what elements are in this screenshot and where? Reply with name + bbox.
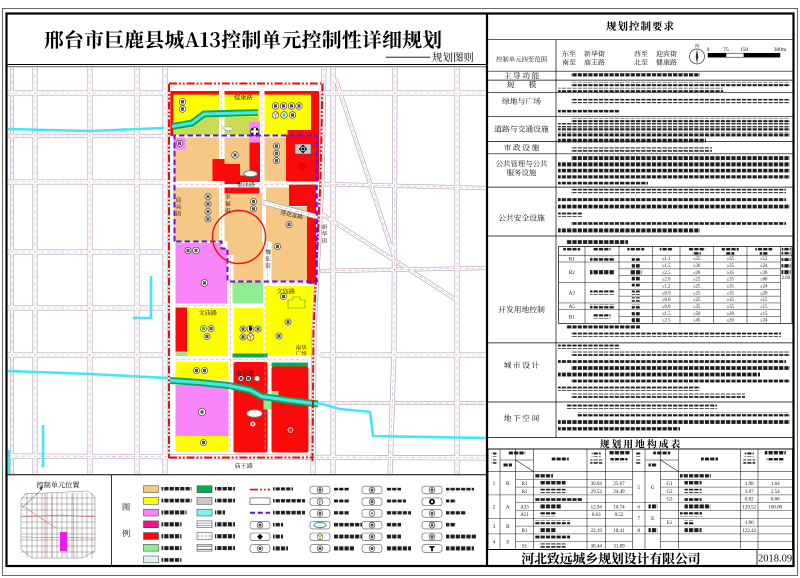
svg-text:≤24: ≤24 xyxy=(760,284,768,289)
svg-text:≤15: ≤15 xyxy=(760,312,768,317)
svg-text:≤24: ≤24 xyxy=(760,319,768,324)
svg-text:≤24: ≤24 xyxy=(760,264,768,269)
svg-text:2: 2 xyxy=(493,504,496,510)
svg-text:≤36: ≤36 xyxy=(760,271,768,276)
svg-text:122.42: 122.42 xyxy=(742,529,756,534)
svg-text:G: G xyxy=(651,485,655,491)
svg-text:150: 150 xyxy=(740,47,749,53)
svg-text:100.00: 100.00 xyxy=(768,505,782,510)
svg-text:≤35: ≤35 xyxy=(693,257,701,262)
svg-text:S: S xyxy=(506,540,509,546)
svg-text:A33: A33 xyxy=(520,505,529,510)
svg-text:38.44: 38.44 xyxy=(591,544,603,549)
svg-text:≤28: ≤28 xyxy=(693,271,701,276)
svg-text:≥35: ≥35 xyxy=(727,257,735,262)
svg-text:≤45: ≤45 xyxy=(693,319,701,324)
svg-text:4: 4 xyxy=(493,540,496,546)
svg-text:3.07: 3.07 xyxy=(745,490,754,495)
svg-text:≤15: ≤15 xyxy=(760,298,768,303)
svg-text:G2: G2 xyxy=(666,490,673,495)
svg-text:31.89: 31.89 xyxy=(613,544,625,549)
svg-text:0.63: 0.63 xyxy=(592,513,601,518)
svg-text:≥35: ≥35 xyxy=(727,271,735,276)
svg-text:A3: A3 xyxy=(569,291,576,297)
svg-text:R1: R1 xyxy=(522,482,528,487)
svg-text:≤25: ≤25 xyxy=(693,284,701,289)
svg-text:≤25: ≤25 xyxy=(693,298,701,303)
svg-text:≤2.5: ≤2.5 xyxy=(662,319,671,324)
svg-text:B1: B1 xyxy=(569,314,575,320)
svg-text:≤1.1: ≤1.1 xyxy=(662,257,671,262)
svg-text:G3: G3 xyxy=(666,498,673,503)
svg-text:8: 8 xyxy=(637,528,640,534)
svg-text:≤0.8: ≤0.8 xyxy=(662,298,671,303)
svg-text:≥20: ≥20 xyxy=(727,312,735,317)
svg-text:≤1.2: ≤1.2 xyxy=(662,284,671,289)
svg-text:≥20: ≥20 xyxy=(727,319,735,324)
svg-text:B1: B1 xyxy=(522,529,528,534)
svg-text:P: P xyxy=(319,500,322,505)
svg-text:R: R xyxy=(506,481,510,487)
svg-text:E1: E1 xyxy=(667,521,673,526)
svg-text:0.52: 0.52 xyxy=(615,513,624,518)
svg-text:1: 1 xyxy=(493,481,496,487)
svg-text:≤35: ≤35 xyxy=(693,305,701,310)
svg-text:30.94: 30.94 xyxy=(591,482,603,487)
svg-text:≥35: ≥35 xyxy=(727,264,735,269)
svg-text:2.60: 2.60 xyxy=(782,276,791,281)
svg-text:2018.09: 2018.09 xyxy=(758,554,792,565)
svg-text:1.90: 1.90 xyxy=(745,521,754,526)
svg-text:6: 6 xyxy=(637,504,640,510)
svg-text:24.49: 24.49 xyxy=(613,490,625,495)
svg-text:300m: 300m xyxy=(774,47,787,53)
svg-text:≤12: ≤12 xyxy=(760,257,768,262)
svg-text:≤2.5: ≤2.5 xyxy=(662,271,671,276)
svg-text:A51: A51 xyxy=(520,513,529,518)
svg-text:2.54: 2.54 xyxy=(771,490,780,495)
svg-text:R1: R1 xyxy=(569,256,575,262)
svg-text:≤20: ≤20 xyxy=(760,291,768,296)
svg-text:7: 7 xyxy=(637,516,640,522)
svg-text:1.98: 1.98 xyxy=(745,482,754,487)
svg-text:22.19: 22.19 xyxy=(591,529,603,534)
svg-text:≤1.5: ≤1.5 xyxy=(662,312,671,317)
svg-text:18.41: 18.41 xyxy=(613,529,625,534)
svg-text:29.52: 29.52 xyxy=(591,490,603,495)
svg-text:0.68: 0.68 xyxy=(771,498,780,503)
svg-text:1.64: 1.64 xyxy=(771,482,780,487)
svg-text:R2: R2 xyxy=(569,270,575,276)
svg-text:≥35: ≥35 xyxy=(727,298,735,303)
svg-text:≥35: ≥35 xyxy=(727,291,735,296)
svg-text:≤0.8: ≤0.8 xyxy=(662,305,671,310)
svg-text:≤15: ≤15 xyxy=(760,305,768,310)
svg-text:N: N xyxy=(695,44,699,50)
svg-text:25.67: 25.67 xyxy=(613,482,625,487)
svg-text:0.82: 0.82 xyxy=(745,498,754,503)
svg-text:≤60: ≤60 xyxy=(760,278,768,283)
svg-text:≤1.5: ≤1.5 xyxy=(662,264,671,269)
svg-text:0: 0 xyxy=(707,47,710,53)
svg-text:A: A xyxy=(506,504,510,510)
svg-text:≤50: ≤50 xyxy=(693,312,701,317)
svg-text:120.52: 120.52 xyxy=(742,505,756,510)
svg-text:75: 75 xyxy=(723,47,729,53)
svg-text:B: B xyxy=(506,524,510,530)
svg-text:≤30: ≤30 xyxy=(693,264,701,269)
svg-text:G1: G1 xyxy=(666,482,673,487)
svg-text:≤0.9: ≤0.9 xyxy=(662,291,671,296)
svg-text:R2: R2 xyxy=(522,490,528,495)
svg-text:≤25: ≤25 xyxy=(693,291,701,296)
svg-text:10.74: 10.74 xyxy=(613,505,625,510)
svg-text:12.94: 12.94 xyxy=(591,505,603,510)
svg-text:≤25: ≤25 xyxy=(693,278,701,283)
svg-text:≤2.8: ≤2.8 xyxy=(662,278,671,283)
svg-text:≥35: ≥35 xyxy=(727,284,735,289)
svg-text:≥35: ≥35 xyxy=(727,278,735,283)
svg-text:S1: S1 xyxy=(522,544,528,549)
svg-text:≥35: ≥35 xyxy=(727,305,735,310)
svg-text:5: 5 xyxy=(637,485,640,491)
svg-text:A5: A5 xyxy=(569,304,576,310)
svg-text:3: 3 xyxy=(493,524,496,530)
